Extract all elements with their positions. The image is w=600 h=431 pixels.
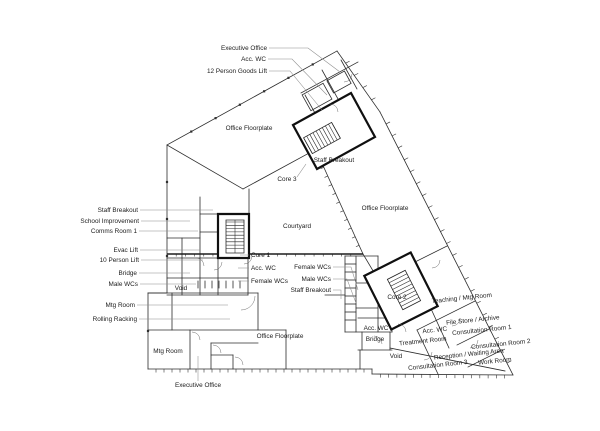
room-label-office-floorplate-east: Office Floorplate <box>362 205 409 212</box>
room-label-courtyard: Courtyard <box>283 223 312 230</box>
leader-male-wcs-mid <box>333 279 356 303</box>
leader-female-wcs-mid <box>333 267 358 290</box>
room-label-rolling-racking: Rolling Racking <box>93 316 138 323</box>
leader-goods-lift <box>269 71 322 110</box>
room-label-mtg-room-north: Mtg Room <box>106 302 135 309</box>
room-label-bridge-west: Bridge <box>119 270 138 277</box>
room-label-female-wcs-core1: Female WCs <box>251 278 288 285</box>
room-label-staff-breakout-mid: Staff Breakout <box>291 287 332 294</box>
room-label-bridge-east: Bridge <box>366 336 385 343</box>
room-label-executive-office-south: Executive Office <box>175 382 222 389</box>
room-label-file-store-archive: File Store / Archive <box>446 314 501 327</box>
room-label-comms-room-1: Comms Room 1 <box>91 228 138 235</box>
room-label-consultation-room-1: Consultation Room 1 <box>452 324 513 337</box>
room-label-office-floorplate-south: Office Floorplate <box>257 333 304 340</box>
room-label-male-wcs-west: Male WCs <box>109 281 138 288</box>
leader-acc-wc-top <box>268 59 327 95</box>
room-label-treatment-room: Treatment Room <box>399 336 447 348</box>
room-label-acc-wc-bridge: Acc. WC <box>364 325 389 332</box>
room-label-female-wcs-mid: Female WCs <box>294 264 331 271</box>
room-label-work-room: Work Room <box>478 356 512 366</box>
room-label-core-1: Core 1 <box>251 252 271 259</box>
room-label-acc-wc-core1: Acc. WC <box>251 265 276 272</box>
room-label-acc-wc-top: Acc. WC <box>241 56 266 63</box>
room-label-male-wcs-mid: Male WCs <box>302 276 331 283</box>
leader-executive-office-top <box>269 48 340 72</box>
room-label-void-west: Void <box>175 285 188 292</box>
room-label-void-east: Void <box>390 353 403 360</box>
room-label-teaching-mtg-room: Teaching / Mtg Room <box>431 292 492 305</box>
leader-staff-breakout-mid <box>333 290 341 299</box>
floor-plan-svg: Executive OfficeAcc. WC12 Person Goods L… <box>0 0 600 431</box>
walls <box>148 51 513 375</box>
room-label-executive-office-top: Executive Office <box>221 45 268 52</box>
floor-plan: Executive OfficeAcc. WC12 Person Goods L… <box>0 0 600 431</box>
room-label-staff-breakout-core3: Staff Breakout <box>314 157 355 164</box>
room-label-core-2: Core 2 <box>387 294 407 301</box>
room-label-goods-lift: 12 Person Goods Lift <box>207 68 267 75</box>
room-label-evac-lift: Evac Lift <box>113 247 138 254</box>
room-label-mtg-room-south: Mtg Room <box>153 348 182 355</box>
room-label-staff-breakout-west: Staff Breakout <box>98 207 139 214</box>
room-label-ten-person-lift: 10 Person Lift <box>100 257 140 264</box>
room-label-core-3: Core 3 <box>277 176 297 183</box>
room-label-acc-wc-wing: Acc. WC <box>422 326 448 336</box>
leader-core-3 <box>297 164 306 177</box>
room-label-office-floorplate-nw: Office Floorplate <box>226 125 273 132</box>
room-label-school-improvement: School Improvement <box>80 218 139 225</box>
